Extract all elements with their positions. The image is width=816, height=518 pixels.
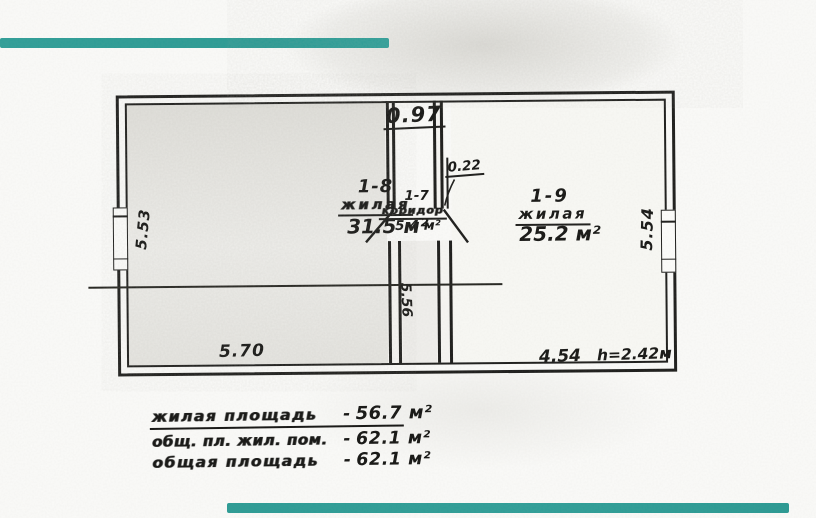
room-1-9-area: 25.2 м² (519, 223, 601, 245)
summary-separator: - (338, 450, 356, 470)
dim-corridor-top-width: 0.97 (382, 103, 445, 131)
summary-label: жилая площадь (152, 405, 338, 426)
dim-bottom-left: 5.70 (219, 343, 265, 362)
room-1-7-number: 1-7 (404, 189, 429, 203)
window-right (661, 210, 677, 273)
dim-wall-offset: 0.22 (444, 158, 485, 178)
room-1-7-area: 5.4 м² (395, 219, 441, 234)
window-left (113, 207, 129, 270)
dim-corridor-length: 5.56 (397, 282, 413, 317)
room-1-8-number: 1-8 (358, 178, 394, 197)
area-summary: жилая площадь - 56.7 м² общ. пл. жил. по… (152, 402, 434, 474)
window-right-divider (661, 221, 676, 223)
scanned-floor-plan-page: 0.97 0.22 5.53 5.54 5.56 5.70 4.54 h=2.4… (0, 0, 816, 518)
summary-label: общ. пл. жил. пом. (152, 430, 338, 451)
dim-ceiling-height: h=2.42м (597, 345, 672, 365)
window-right-divider (661, 258, 676, 260)
summary-value: 62.1 м² (356, 428, 431, 449)
dim-right-side: 5.54 (639, 207, 657, 251)
summary-row-total: общая площадь - 62.1 м² (152, 449, 433, 474)
summary-label: общая площадь (152, 451, 338, 472)
dim-bottom-right: 4.54 (539, 348, 581, 367)
scan-artifact-bar-bottom (227, 503, 789, 513)
scan-artifact-bar-top (0, 38, 389, 48)
summary-separator: - (338, 404, 356, 424)
window-left-divider (113, 258, 128, 260)
window-left-divider (113, 215, 128, 217)
summary-row-living: жилая площадь - 56.7 м² (152, 402, 433, 427)
summary-separator: - (338, 429, 356, 449)
summary-value: 62.1 м² (356, 449, 431, 470)
summary-value: 56.7 м² (356, 402, 433, 424)
